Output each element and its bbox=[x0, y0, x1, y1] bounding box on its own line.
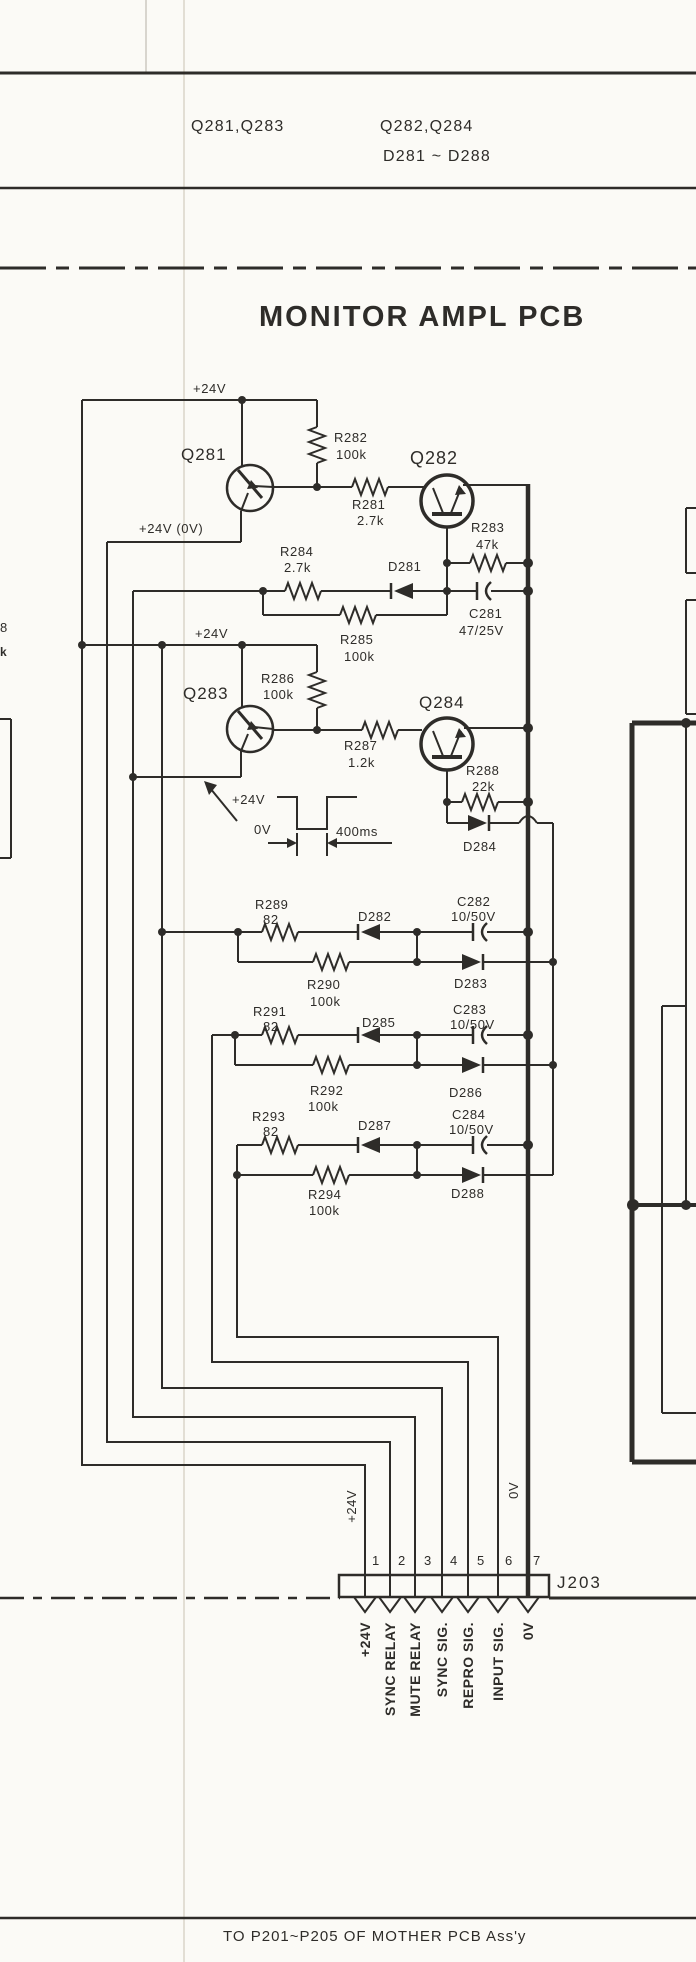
diode-d286 bbox=[462, 1057, 483, 1073]
label-r286-val: 100k bbox=[263, 688, 294, 701]
label-r281-val: 2.7k bbox=[357, 514, 384, 527]
label-r284-ref: R284 bbox=[280, 545, 313, 558]
label-r292-ref: R292 bbox=[310, 1084, 343, 1097]
label-r294-val: 100k bbox=[309, 1204, 340, 1217]
label-r286-ref: R286 bbox=[261, 672, 294, 685]
header-group2: Q282,Q284 bbox=[380, 119, 474, 135]
label-r288-val: 22k bbox=[472, 780, 495, 793]
schematic-page: Q281,Q283 Q282,Q284 D281 ~ D288 MONITOR … bbox=[0, 0, 696, 1962]
label-d284: D284 bbox=[463, 840, 496, 853]
label-d288: D288 bbox=[451, 1187, 484, 1200]
label-r294-ref: R294 bbox=[308, 1188, 341, 1201]
diode-d281 bbox=[391, 583, 413, 599]
label-r293-ref: R293 bbox=[252, 1110, 285, 1123]
pin-label-repro-sig: REPRO SIG. bbox=[460, 1622, 476, 1709]
pin-label-input-sig: INPUT SIG. bbox=[490, 1622, 506, 1701]
label-c283-val: 10/50V bbox=[450, 1018, 495, 1031]
header-group1: Q281,Q283 bbox=[191, 119, 285, 135]
label-q281: Q281 bbox=[181, 446, 227, 463]
pin-label-24v: +24V bbox=[357, 1622, 373, 1657]
label-r290-val: 100k bbox=[310, 995, 341, 1008]
connector-j203 bbox=[339, 1575, 549, 1612]
label-r287-ref: R287 bbox=[344, 739, 377, 752]
schematic-canvas bbox=[0, 0, 696, 1962]
connector-ref: J203 bbox=[557, 1574, 602, 1591]
pulse-high-label: +24V bbox=[232, 793, 265, 806]
label-r281-ref: R281 bbox=[352, 498, 385, 511]
transistor-q283 bbox=[227, 706, 273, 752]
label-r288-ref: R288 bbox=[466, 764, 499, 777]
edge-fragment-2: k bbox=[0, 646, 7, 658]
pulse-width-label: 400ms bbox=[336, 825, 378, 838]
frame-lines bbox=[0, 73, 696, 1918]
diode-d283 bbox=[462, 954, 483, 970]
capacitor-c282 bbox=[473, 923, 487, 941]
label-d287: D287 bbox=[358, 1119, 391, 1132]
label-c281-ref: C281 bbox=[469, 607, 502, 620]
pin-label-mute-relay: MUTE RELAY bbox=[407, 1622, 423, 1717]
page-title: MONITOR AMPL PCB bbox=[259, 303, 585, 332]
pin-number-4: 4 bbox=[450, 1554, 458, 1567]
label-r283-val: 47k bbox=[476, 538, 499, 551]
label-r285-ref: R285 bbox=[340, 633, 373, 646]
edge-fragment-1: 8 bbox=[0, 621, 8, 634]
diode-d288 bbox=[462, 1167, 483, 1183]
pin-number-6: 6 bbox=[505, 1554, 513, 1567]
label-q283: Q283 bbox=[183, 685, 229, 702]
label-r293-val: 82 bbox=[263, 1125, 279, 1138]
label-r291-ref: R291 bbox=[253, 1005, 286, 1018]
label-q284: Q284 bbox=[419, 694, 465, 711]
pin-number-3: 3 bbox=[424, 1554, 432, 1567]
label-d286: D286 bbox=[449, 1086, 482, 1099]
pin-number-2: 2 bbox=[398, 1554, 406, 1567]
label-d282: D282 bbox=[358, 910, 391, 923]
pin-number-5: 5 bbox=[477, 1554, 485, 1567]
label-r282-ref: R282 bbox=[334, 431, 367, 444]
label-r287-val: 1.2k bbox=[348, 756, 375, 769]
scan-fold-lines bbox=[146, 0, 184, 1962]
rail-mid-label: +24V (0V) bbox=[139, 522, 203, 535]
label-c281-val: 47/25V bbox=[459, 624, 504, 637]
capacitor-c281 bbox=[477, 582, 491, 600]
label-d285: D285 bbox=[362, 1016, 395, 1029]
rail-top-label: +24V bbox=[193, 382, 226, 395]
label-r289-val: 82 bbox=[263, 913, 279, 926]
right-partial-block bbox=[632, 508, 696, 1462]
label-r282-val: 100k bbox=[336, 448, 367, 461]
transistor-q281 bbox=[227, 465, 273, 511]
label-c282-val: 10/50V bbox=[451, 910, 496, 923]
label-r291-val: 82 bbox=[263, 1020, 279, 1033]
junction-dots bbox=[78, 396, 691, 1211]
wire-label-24v: +24V bbox=[344, 1490, 360, 1523]
label-c284-val: 10/50V bbox=[449, 1123, 494, 1136]
left-partial-block bbox=[0, 719, 11, 858]
pin-number-7: 7 bbox=[533, 1554, 541, 1567]
pulse-low-label: 0V bbox=[254, 823, 271, 836]
label-q282: Q282 bbox=[410, 449, 458, 467]
label-r284-val: 2.7k bbox=[284, 561, 311, 574]
label-c283-ref: C283 bbox=[453, 1003, 486, 1016]
capacitor-c284 bbox=[473, 1136, 487, 1154]
label-d281: D281 bbox=[388, 560, 421, 573]
pin-label-sync-sig: SYNC SIG. bbox=[434, 1622, 450, 1697]
header-group3: D281 ~ D288 bbox=[383, 149, 491, 165]
label-d283: D283 bbox=[454, 977, 487, 990]
label-c282-ref: C282 bbox=[457, 895, 490, 908]
transistor-q282 bbox=[421, 475, 473, 527]
wire-label-0v: 0V bbox=[506, 1482, 522, 1499]
rail2-label: +24V bbox=[195, 627, 228, 640]
diode-d287 bbox=[358, 1137, 380, 1153]
pin-number-1: 1 bbox=[372, 1554, 380, 1567]
label-r292-val: 100k bbox=[308, 1100, 339, 1113]
footer-note: TO P201~P205 OF MOTHER PCB Ass'y bbox=[223, 1929, 526, 1944]
label-r290-ref: R290 bbox=[307, 978, 340, 991]
label-r283-ref: R283 bbox=[471, 521, 504, 534]
label-r289-ref: R289 bbox=[255, 898, 288, 911]
label-r285-val: 100k bbox=[344, 650, 375, 663]
pin-label-sync-relay: SYNC RELAY bbox=[382, 1622, 398, 1716]
diode-d282 bbox=[358, 924, 380, 940]
pin-label-0v: 0V bbox=[520, 1622, 536, 1640]
label-c284-ref: C284 bbox=[452, 1108, 485, 1121]
diode-d284 bbox=[468, 815, 489, 831]
